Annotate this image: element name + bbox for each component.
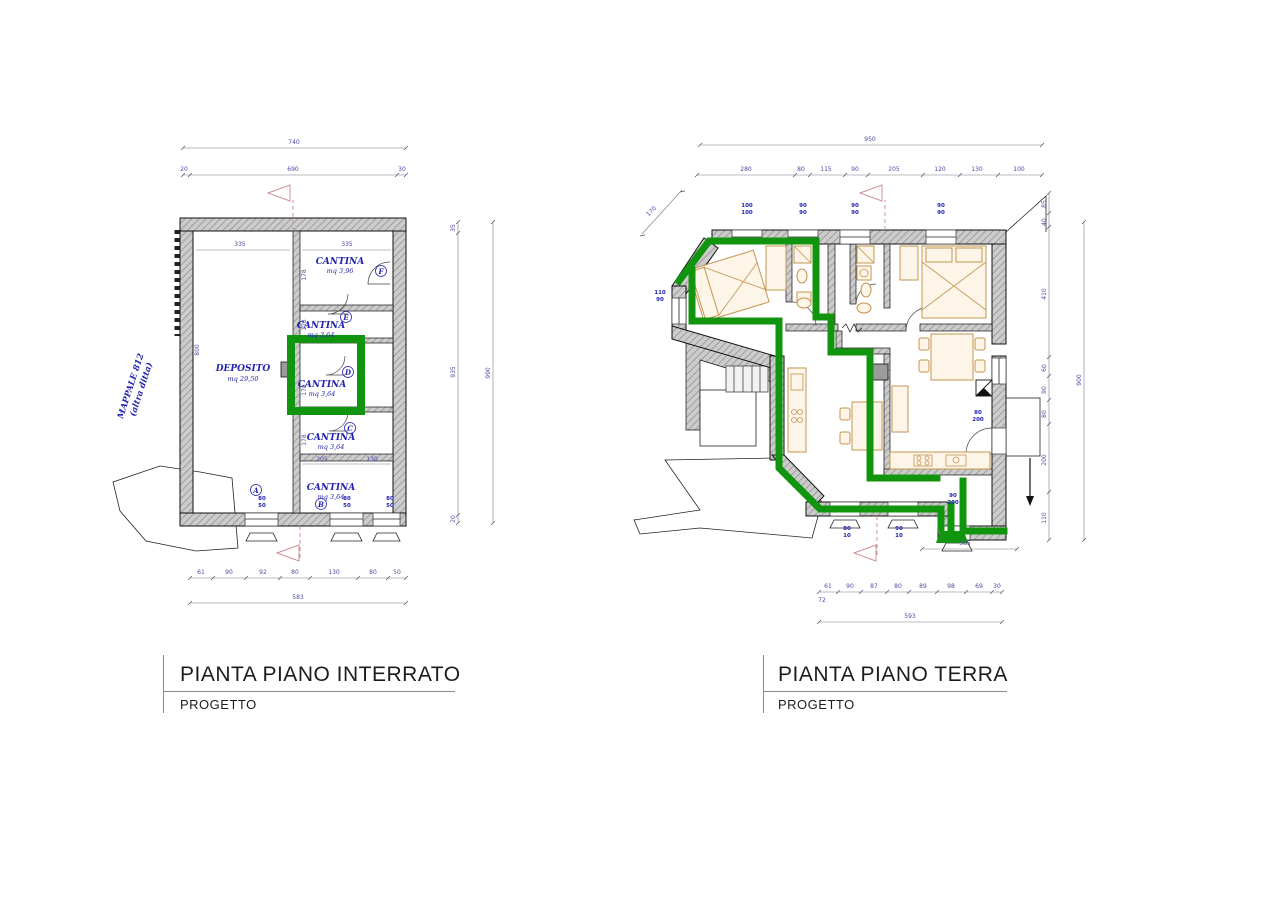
dim-label: 80 [797, 166, 805, 173]
cantina-c-area: mq 3,64 [318, 443, 345, 451]
dim-label: 20 [450, 515, 457, 523]
kitchen-table [840, 402, 882, 450]
dim-label: 170 [645, 205, 658, 218]
window-label: 80 [258, 496, 266, 502]
dim-label: 410 [1041, 288, 1048, 300]
dim-label: 130 [366, 456, 378, 463]
svg-text:80: 80 [843, 526, 851, 532]
deposito-area: mq 29,50 [228, 375, 259, 383]
dining-table [919, 334, 985, 380]
canopy-outline [1006, 196, 1046, 232]
dim-label: 178 [301, 434, 308, 446]
window-label: 80 [343, 496, 351, 502]
dim-label: 80 [291, 569, 299, 576]
svg-text:90: 90 [851, 210, 859, 216]
basement-title: PIANTA PIANO INTERRATO [180, 663, 461, 687]
svg-text:10: 10 [843, 533, 851, 539]
dim-label: 90 [225, 569, 233, 576]
dim-label: 30 [398, 166, 406, 173]
kitchen-bottom-counter [890, 452, 990, 469]
dim-label: 85 [1041, 200, 1048, 208]
down-arrow-icon [1026, 458, 1034, 506]
sideboard [892, 386, 908, 432]
basement-partition-cb [300, 454, 393, 461]
basement-wall-right [393, 231, 406, 513]
dim-label: 178 [301, 319, 308, 331]
basement-wall-bottom [180, 513, 406, 526]
svg-text:80: 80 [974, 410, 982, 416]
partition-bath2-left [850, 244, 856, 304]
dim-label: 900 [1076, 374, 1083, 386]
svg-text:90: 90 [851, 203, 859, 209]
marker-d: D [344, 368, 352, 377]
svg-text:10: 10 [895, 533, 903, 539]
dim-label: 69 [975, 583, 983, 590]
svg-text:90: 90 [656, 297, 664, 303]
cantina-e-area: mq 3,64 [308, 331, 335, 339]
basement-title-block: PIANTA PIANO INTERRATO PROGETTO [163, 655, 463, 715]
dim-label: 205 [888, 166, 900, 173]
dim-label: 120 [934, 166, 946, 173]
dim-label: 800 [194, 344, 201, 356]
dim-label: 90 [846, 583, 854, 590]
dim-label: 115 [820, 166, 832, 173]
svg-text:100: 100 [741, 203, 753, 209]
ground-wall-right-upper [992, 244, 1006, 344]
basement-section-marker-bottom-icon [277, 526, 300, 561]
partition-corridor-3 [920, 324, 992, 331]
dim-label: 205 [316, 456, 328, 463]
diag-dimension: 170 [640, 190, 685, 236]
svg-text:90: 90 [799, 210, 807, 216]
dim-label: 60 [1041, 364, 1048, 372]
marker-f: F [378, 267, 385, 276]
svg-text:90: 90 [799, 203, 807, 209]
wardrobe-1 [766, 246, 786, 290]
dim-label: 98 [947, 583, 955, 590]
dim-label: 40 [1041, 218, 1048, 226]
floor-plans-svg: DEPOSITO mq 29,50 CANTINA mq 3,96 CANTIN… [0, 0, 1280, 905]
marker-e: E [342, 313, 349, 322]
pillar [872, 364, 888, 380]
svg-text:110: 110 [654, 290, 666, 296]
dim-label: 335 [341, 241, 353, 248]
svg-text:90: 90 [949, 493, 957, 499]
svg-text:90: 90 [937, 210, 945, 216]
dim-label: 92 [259, 569, 267, 576]
dim-label: 178 [301, 384, 308, 396]
mappale-label: MAPPALE 812 (altra ditta) [116, 352, 157, 424]
dim-label: 583 [292, 594, 304, 601]
ground-section-marker-top-icon [860, 185, 885, 230]
title-divider-vertical [163, 655, 164, 713]
partition-kitchen-bottom [884, 469, 992, 475]
dim-label: 335 [234, 241, 246, 248]
dim-label: 280 [740, 166, 752, 173]
dim-label: 50 [393, 569, 401, 576]
dim-label: 80 [894, 583, 902, 590]
dim-label: 72 [818, 597, 826, 604]
dim-label: 200 [1041, 454, 1048, 466]
cantina-d-area: mq 3,64 [309, 390, 336, 398]
svg-text:100: 100 [741, 210, 753, 216]
basement-partition-fe [300, 305, 393, 311]
ground-title-block: PIANTA PIANO TERRA PROGETTO [763, 655, 1023, 715]
bathroom-1-fixtures [794, 246, 811, 308]
marker-b: B [317, 500, 324, 509]
marker-a: A [252, 486, 259, 495]
dim-label: 110 [1041, 512, 1048, 524]
dim-label: 80 [369, 569, 377, 576]
dim-label: 90 [1041, 386, 1048, 394]
door-right [992, 428, 1006, 454]
dim-label: 130 [328, 569, 340, 576]
cantina-b-label: CANTINA [307, 483, 356, 493]
partition-bath2-bed2 [884, 244, 890, 308]
basement-wall-left [180, 231, 193, 513]
dim-label: 89 [919, 583, 927, 590]
dim-label: 740 [288, 139, 300, 146]
dim-label: 935 [450, 366, 457, 378]
title-divider-horizontal [163, 691, 455, 692]
svg-text:200: 200 [972, 417, 984, 423]
cantina-f-area: mq 3,96 [327, 267, 354, 275]
dim-label: 87 [870, 583, 878, 590]
bathroom-2-fixtures [857, 246, 874, 313]
dim-label: 61 [824, 583, 832, 590]
window-label: 50 [343, 503, 351, 509]
window-label: 80 [386, 496, 394, 502]
ground-subtitle: PROGETTO [778, 697, 855, 712]
dim-label: 385 [959, 540, 971, 547]
svg-text:90: 90 [895, 526, 903, 532]
dim-label: 100 [1013, 166, 1025, 173]
ground-title: PIANTA PIANO TERRA [778, 663, 1008, 687]
dim-label: 990 [485, 367, 492, 379]
dim-label: 950 [864, 136, 876, 143]
basement-plan: DEPOSITO mq 29,50 CANTINA mq 3,96 CANTIN… [113, 139, 495, 605]
cantina-f-label: CANTINA [316, 257, 365, 267]
marker-c: C [347, 424, 353, 433]
svg-text:90: 90 [937, 203, 945, 209]
cantina-c-label: CANTINA [307, 433, 356, 443]
partition-corridor-2 [856, 324, 906, 331]
dim-label: 690 [287, 166, 299, 173]
dim-label: 130 [971, 166, 983, 173]
window-label: 50 [258, 503, 266, 509]
dim-label: 80 [1041, 410, 1048, 418]
ground-floor-plan: 170 100 100 90 90 90 90 90 90 110 90 80 … [634, 136, 1086, 624]
title-divider-vertical [763, 655, 764, 713]
title-divider-horizontal [763, 691, 1007, 692]
drawing-sheet: DEPOSITO mq 29,50 CANTINA mq 3,96 CANTIN… [0, 0, 1280, 905]
basement-subtitle: PROGETTO [180, 697, 257, 712]
dim-label: 178 [301, 269, 308, 281]
external-landing [1006, 398, 1040, 456]
deposito-label: DEPOSITO [215, 364, 271, 374]
dim-label: 90 [851, 166, 859, 173]
dim-label: 30 [993, 583, 1001, 590]
dim-label: 61 [197, 569, 205, 576]
partition-bed1-bath1 [786, 244, 792, 302]
kitchen-left-counter [788, 368, 806, 452]
window-label: 50 [386, 503, 394, 509]
dim-label: 35 [450, 224, 457, 232]
chimney-icon [976, 380, 992, 396]
svg-text:200: 200 [947, 500, 959, 506]
dim-label: 593 [904, 613, 916, 620]
dim-label: 20 [180, 166, 188, 173]
basement-stone-wall [113, 466, 238, 551]
bed-2 [900, 246, 986, 318]
